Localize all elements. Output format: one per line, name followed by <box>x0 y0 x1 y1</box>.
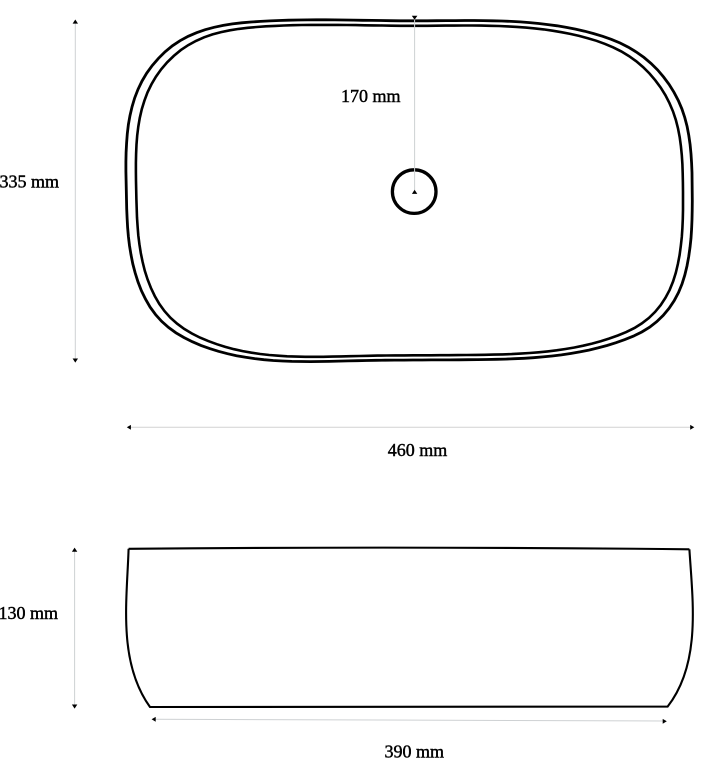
svg-text:390 mm: 390 mm <box>385 741 445 761</box>
svg-text:335 mm: 335 mm <box>0 172 59 192</box>
svg-text:460 mm: 460 mm <box>388 440 448 460</box>
svg-text:130 mm: 130 mm <box>0 603 58 623</box>
svg-text:170 mm: 170 mm <box>341 86 401 106</box>
